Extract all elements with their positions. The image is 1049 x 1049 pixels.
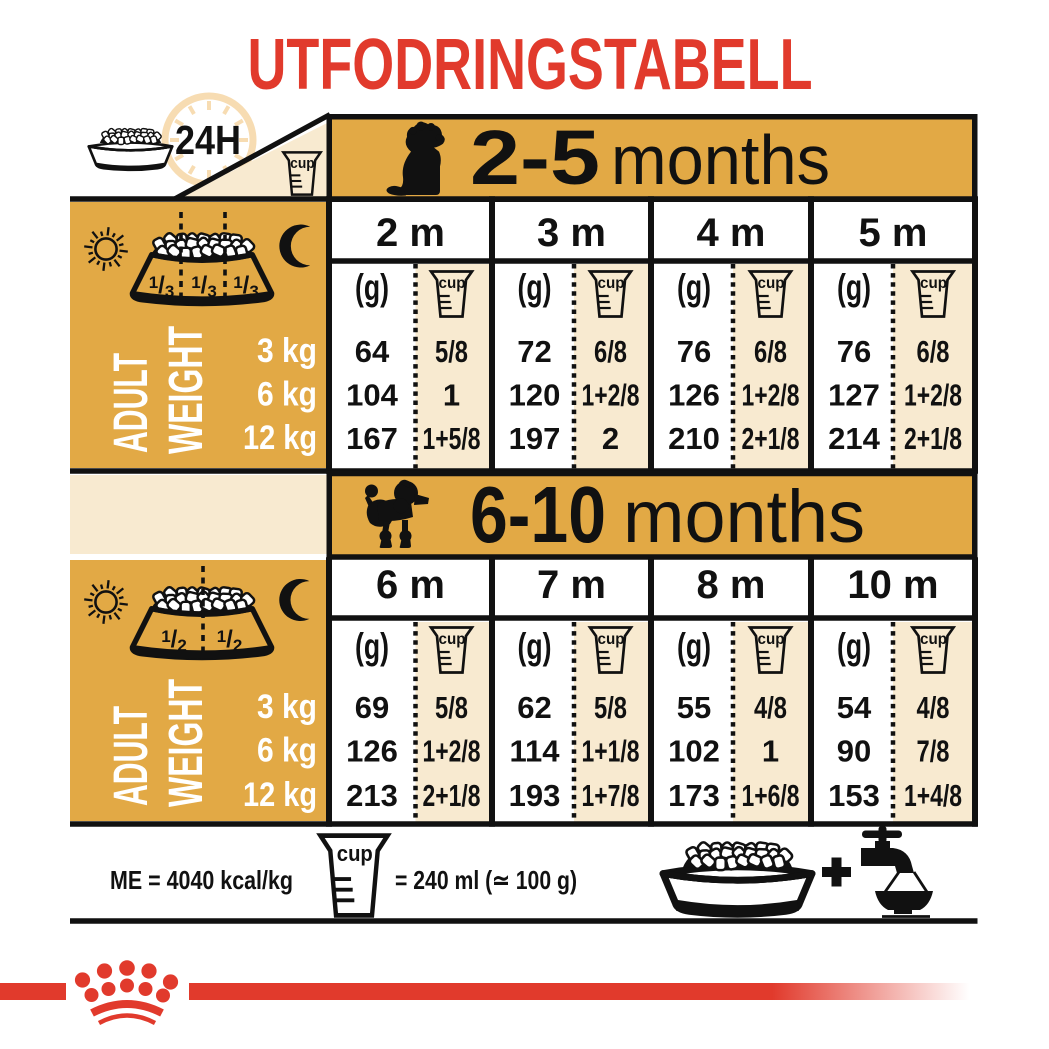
svg-text:127: 127 <box>828 378 880 413</box>
svg-text:cup: cup <box>758 631 785 648</box>
svg-text:cup: cup <box>439 275 466 292</box>
svg-text:1: 1 <box>762 734 779 769</box>
svg-text:1+2/8: 1+2/8 <box>423 734 481 769</box>
svg-text:104: 104 <box>346 378 398 413</box>
svg-text:cup: cup <box>290 156 315 172</box>
svg-text:(g): (g) <box>355 626 389 667</box>
svg-text:5/8: 5/8 <box>435 334 468 369</box>
svg-text:7/8: 7/8 <box>917 734 950 769</box>
svg-text:2+1/8: 2+1/8 <box>423 778 481 813</box>
svg-text:1+6/8: 1+6/8 <box>742 778 800 813</box>
svg-text:12 kg: 12 kg <box>243 419 317 457</box>
svg-text:64: 64 <box>355 334 390 369</box>
svg-text:cup: cup <box>598 631 625 648</box>
svg-text:153: 153 <box>828 778 880 813</box>
svg-text:76: 76 <box>837 334 871 369</box>
svg-text:ME = 4040 kcal/kg: ME = 4040 kcal/kg <box>110 865 293 895</box>
svg-text:cup: cup <box>337 841 373 866</box>
svg-text:1+5/8: 1+5/8 <box>423 421 481 456</box>
svg-text:1+7/8: 1+7/8 <box>582 778 640 813</box>
svg-text:213: 213 <box>346 778 398 813</box>
svg-text:2: 2 <box>602 421 619 456</box>
svg-text:WEIGHT: WEIGHT <box>160 679 213 807</box>
svg-text:210: 210 <box>668 421 720 456</box>
svg-text:cup: cup <box>439 631 466 648</box>
svg-text:ADULT: ADULT <box>105 353 158 453</box>
svg-text:cup: cup <box>598 275 625 292</box>
svg-text:5 m: 5 m <box>859 211 928 255</box>
svg-text:WEIGHT: WEIGHT <box>160 326 213 454</box>
svg-text:months: months <box>611 121 830 199</box>
svg-text:3 kg: 3 kg <box>257 332 317 370</box>
svg-text:167: 167 <box>346 421 398 456</box>
svg-text:(g): (g) <box>837 267 871 308</box>
svg-text:197: 197 <box>509 421 561 456</box>
svg-text:173: 173 <box>668 778 720 813</box>
svg-text:ADULT: ADULT <box>105 706 158 806</box>
svg-text:8 m: 8 m <box>697 563 766 607</box>
svg-text:(g): (g) <box>518 626 552 667</box>
svg-text:24H: 24H <box>175 117 241 163</box>
svg-text:UTFODRINGSTABELL: UTFODRINGSTABELL <box>248 25 813 105</box>
svg-text:120: 120 <box>509 378 561 413</box>
svg-text:1+2/8: 1+2/8 <box>904 378 962 413</box>
svg-text:3 m: 3 m <box>537 211 606 255</box>
svg-text:(g): (g) <box>518 267 552 308</box>
svg-text:69: 69 <box>355 690 389 725</box>
svg-text:76: 76 <box>677 334 711 369</box>
svg-text:55: 55 <box>677 690 711 725</box>
svg-text:(g): (g) <box>677 626 711 667</box>
svg-text:3 kg: 3 kg <box>257 688 317 726</box>
svg-text:1+2/8: 1+2/8 <box>582 378 640 413</box>
svg-text:6/8: 6/8 <box>917 334 950 369</box>
svg-text:cup: cup <box>920 275 947 292</box>
svg-text:6 kg: 6 kg <box>257 376 317 414</box>
svg-text:4/8: 4/8 <box>917 690 950 725</box>
svg-text:10 m: 10 m <box>847 563 938 607</box>
svg-text:months: months <box>623 475 865 558</box>
svg-text:(g): (g) <box>355 267 389 308</box>
svg-text:193: 193 <box>509 778 561 813</box>
svg-text:6 kg: 6 kg <box>257 732 317 770</box>
svg-text:54: 54 <box>837 690 872 725</box>
svg-text:214: 214 <box>828 421 880 456</box>
svg-text:5/8: 5/8 <box>594 690 627 725</box>
svg-text:2+1/8: 2+1/8 <box>904 421 962 456</box>
svg-text:1+2/8: 1+2/8 <box>742 378 800 413</box>
svg-text:2+1/8: 2+1/8 <box>742 421 800 456</box>
svg-text:cup: cup <box>758 275 785 292</box>
svg-text:6/8: 6/8 <box>754 334 787 369</box>
svg-text:126: 126 <box>668 378 720 413</box>
svg-text:2-5: 2-5 <box>470 115 600 201</box>
svg-text:126: 126 <box>346 734 398 769</box>
svg-text:114: 114 <box>509 734 560 769</box>
svg-text:6/8: 6/8 <box>594 334 627 369</box>
svg-text:(g): (g) <box>837 626 871 667</box>
svg-text:4 m: 4 m <box>697 211 766 255</box>
svg-text:cup: cup <box>920 631 947 648</box>
svg-text:12 kg: 12 kg <box>243 776 317 814</box>
svg-text:72: 72 <box>517 334 551 369</box>
svg-text:6 m: 6 m <box>376 563 445 607</box>
svg-text:2 m: 2 m <box>376 211 445 255</box>
svg-text:1+4/8: 1+4/8 <box>904 778 962 813</box>
svg-text:1: 1 <box>443 378 460 413</box>
svg-text:6-10: 6-10 <box>470 470 606 559</box>
svg-text:90: 90 <box>837 734 871 769</box>
svg-text:1+1/8: 1+1/8 <box>582 734 640 769</box>
svg-text:5/8: 5/8 <box>435 690 468 725</box>
svg-text:62: 62 <box>517 690 551 725</box>
svg-text:102: 102 <box>668 734 720 769</box>
svg-text:4/8: 4/8 <box>754 690 787 725</box>
svg-text:7 m: 7 m <box>537 563 606 607</box>
svg-text:(g): (g) <box>677 267 711 308</box>
svg-text:= 240 ml (≃ 100 g): = 240 ml (≃ 100 g) <box>395 865 577 895</box>
